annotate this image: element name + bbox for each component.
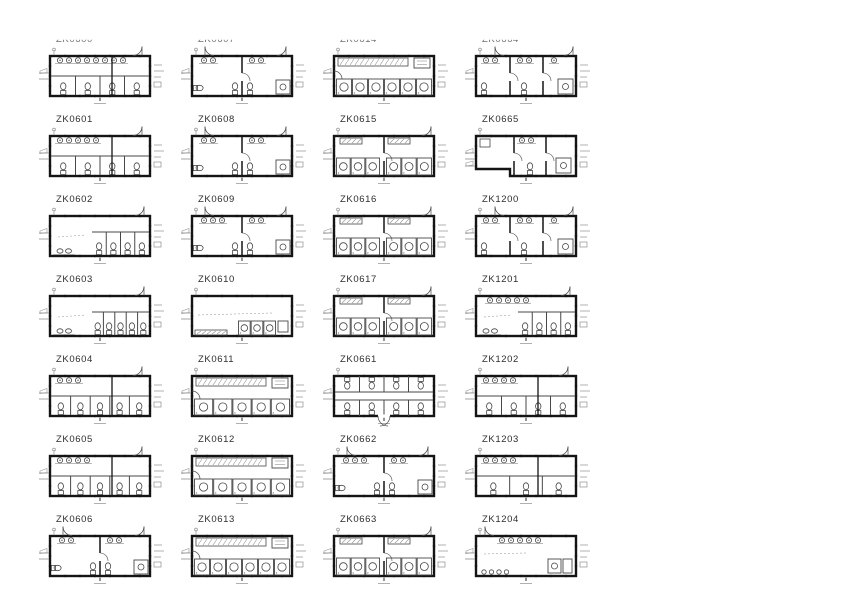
floor-plan-drawing <box>322 206 452 268</box>
plan-cell: ZK0664 <box>464 34 606 114</box>
plan-cell: ZK1200 <box>464 194 606 274</box>
document-page: { "colors": { "background": "#ffffff", "… <box>0 0 841 595</box>
plan-cell: ZK0661 <box>322 354 464 434</box>
plan-cell: ZK0602 <box>38 194 180 274</box>
plan-label: ZK0608 <box>198 114 322 125</box>
floor-plan-drawing <box>180 286 310 348</box>
plan-label: ZK1201 <box>482 274 606 285</box>
plan-label: ZK0604 <box>56 354 180 365</box>
floor-plan-drawing <box>464 126 594 188</box>
plan-cell: ZK1203 <box>464 434 606 514</box>
plan-cell: ZK0616 <box>322 194 464 274</box>
plan-cell: ZK0614 <box>322 34 464 114</box>
plan-cell: ZK0600 <box>38 34 180 114</box>
plan-cell: ZK1204 <box>464 514 606 594</box>
plan-cell: ZK0608 <box>180 114 322 194</box>
plan-label: ZK0664 <box>482 34 606 45</box>
floor-plan-drawing <box>38 46 168 108</box>
floor-plan-drawing <box>38 366 168 428</box>
plan-label: ZK0665 <box>482 114 606 125</box>
plan-label: ZK1204 <box>482 514 606 525</box>
plan-label: ZK1202 <box>482 354 606 365</box>
plan-label: ZK0605 <box>56 434 180 445</box>
plan-label: ZK0607 <box>198 34 322 45</box>
plan-label: ZK0600 <box>56 34 180 45</box>
plan-label: ZK0611 <box>198 354 322 365</box>
floor-plan-drawing <box>322 526 452 588</box>
plan-label: ZK0612 <box>198 434 322 445</box>
floor-plan-drawing <box>322 126 452 188</box>
floor-plan-drawing <box>464 446 594 508</box>
plan-label: ZK1200 <box>482 194 606 205</box>
plan-cell: ZK1201 <box>464 274 606 354</box>
plan-cell: ZK0611 <box>180 354 322 434</box>
plan-cell: ZK0617 <box>322 274 464 354</box>
plan-label: ZK0661 <box>340 354 464 365</box>
floor-plan-drawing <box>322 46 452 108</box>
floor-plan-drawing <box>38 126 168 188</box>
floor-plan-drawing <box>464 206 594 268</box>
plan-cell: ZK0601 <box>38 114 180 194</box>
plan-cell: ZK1202 <box>464 354 606 434</box>
plan-label: ZK0606 <box>56 514 180 525</box>
plan-cell: ZK0605 <box>38 434 180 514</box>
floor-plan-drawing <box>322 286 452 348</box>
floor-plan-drawing <box>322 446 452 508</box>
plan-label: ZK1203 <box>482 434 606 445</box>
floor-plan-drawing <box>180 366 310 428</box>
plan-label: ZK0615 <box>340 114 464 125</box>
plan-label: ZK0617 <box>340 274 464 285</box>
plan-cell: ZK0609 <box>180 194 322 274</box>
plan-label: ZK0603 <box>56 274 180 285</box>
plan-label: ZK0616 <box>340 194 464 205</box>
plan-label: ZK0601 <box>56 114 180 125</box>
floor-plan-drawing <box>180 526 310 588</box>
plan-cell: ZK0615 <box>322 114 464 194</box>
plan-label: ZK0663 <box>340 514 464 525</box>
floor-plan-drawing <box>180 206 310 268</box>
plan-cell: ZK0612 <box>180 434 322 514</box>
plan-label: ZK0610 <box>198 274 322 285</box>
plan-cell: ZK0607 <box>180 34 322 114</box>
floor-plan-drawing <box>322 366 452 428</box>
floor-plan-drawing <box>38 446 168 508</box>
plan-cell: ZK0610 <box>180 274 322 354</box>
floor-plan-drawing <box>38 526 168 588</box>
plan-cell: ZK0606 <box>38 514 180 594</box>
plan-cell: ZK0613 <box>180 514 322 594</box>
plan-label: ZK0602 <box>56 194 180 205</box>
floor-plan-drawing <box>464 526 594 588</box>
plan-cell: ZK0663 <box>322 514 464 594</box>
plan-cell: ZK0603 <box>38 274 180 354</box>
floor-plan-drawing <box>38 206 168 268</box>
floor-plan-drawing <box>464 366 594 428</box>
floor-plan-drawing <box>464 286 594 348</box>
plan-sheet: ZK0600 ZK0607 ZK0614 ZK0664 ZK0601 ZK060… <box>38 34 606 594</box>
floor-plan-drawing <box>180 446 310 508</box>
plan-label: ZK0614 <box>340 34 464 45</box>
floor-plan-drawing <box>180 46 310 108</box>
floor-plan-drawing <box>38 286 168 348</box>
plan-label: ZK0662 <box>340 434 464 445</box>
plan-cell: ZK0662 <box>322 434 464 514</box>
plan-label: ZK0613 <box>198 514 322 525</box>
plan-cell: ZK0604 <box>38 354 180 434</box>
floor-plan-drawing <box>464 46 594 108</box>
plan-label: ZK0609 <box>198 194 322 205</box>
plan-cell: ZK0665 <box>464 114 606 194</box>
floor-plan-drawing <box>180 126 310 188</box>
